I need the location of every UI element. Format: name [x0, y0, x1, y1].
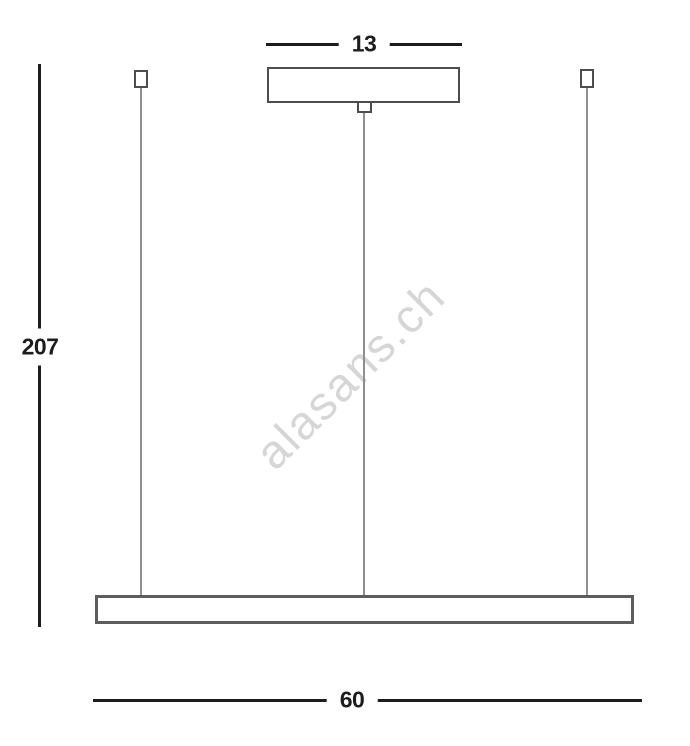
dimension-label-overall-height: 207	[19, 329, 62, 366]
fixture-bar-outline	[95, 595, 634, 624]
dimension-label-fixture-length: 60	[327, 687, 378, 714]
watermark-text: alasans.ch	[244, 268, 456, 480]
dimension-label-canopy-width: 13	[339, 31, 390, 58]
suspension-wire-center	[363, 110, 365, 597]
ceiling-mount-left-outline	[134, 70, 148, 88]
suspension-wire-right	[586, 87, 588, 597]
suspension-wire-left	[140, 87, 142, 597]
pendant-light-dimension-drawing: alasans.ch 13 207 60	[0, 0, 690, 746]
ceiling-mount-right-outline	[580, 69, 594, 88]
canopy-outline	[267, 67, 460, 103]
